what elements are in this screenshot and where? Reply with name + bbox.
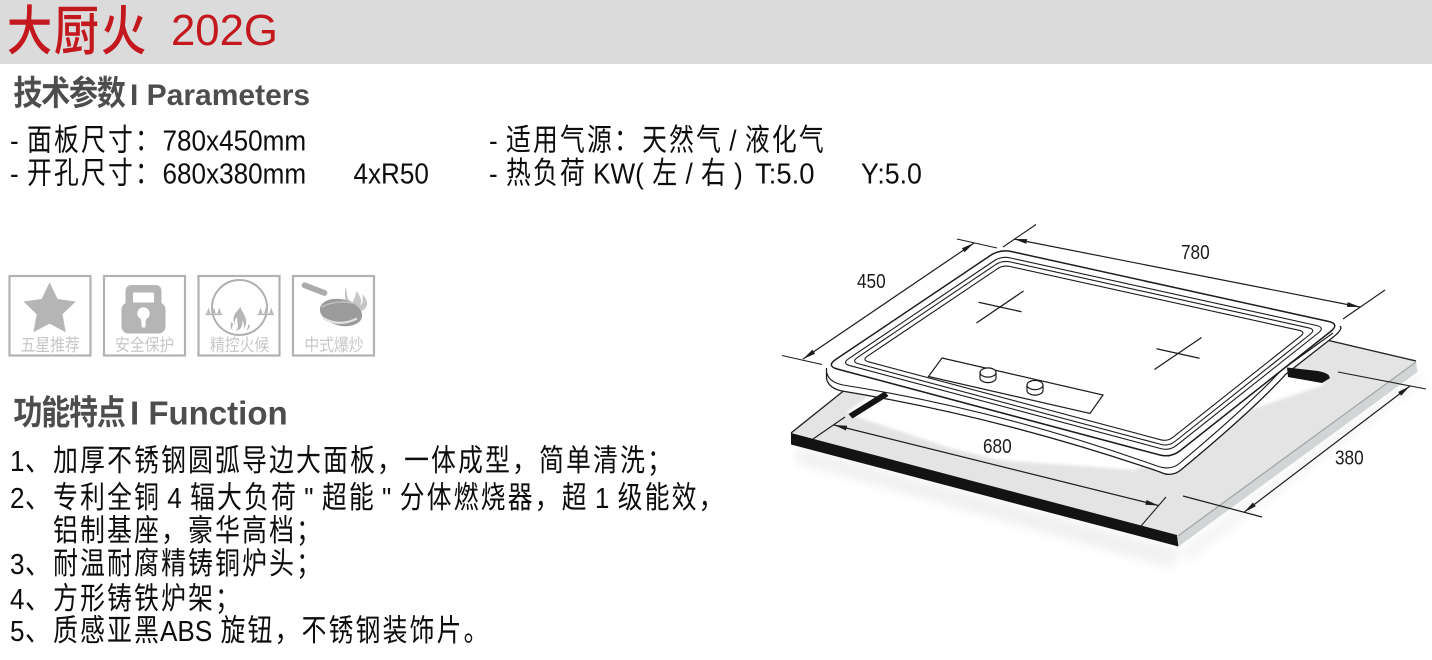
- svg-text:Y:5.0: Y:5.0: [861, 159, 922, 191]
- svg-text:): ): [727, 159, 743, 191]
- svg-text:680x380mm: 680x380mm: [163, 159, 307, 191]
- svg-text:-: -: [489, 126, 505, 158]
- svg-text:ABS: ABS: [160, 616, 220, 648]
- svg-text:3: 3: [10, 549, 25, 581]
- svg-text:/: /: [722, 126, 744, 158]
- svg-text:780: 780: [1181, 241, 1210, 264]
- svg-text:2: 2: [10, 483, 25, 515]
- svg-text:/: /: [678, 159, 700, 191]
- svg-text:-: -: [10, 159, 26, 191]
- svg-text:I Parameters: I Parameters: [130, 79, 310, 112]
- svg-text:202G: 202G: [171, 6, 278, 55]
- svg-text:I Function: I Function: [130, 395, 288, 432]
- svg-text:-: -: [489, 159, 505, 191]
- svg-text:-: -: [10, 126, 26, 158]
- svg-text:": ": [375, 483, 399, 515]
- svg-text:KW(: KW(: [586, 159, 651, 191]
- svg-text:4: 4: [160, 483, 189, 515]
- svg-text:5: 5: [10, 616, 25, 648]
- svg-text:1: 1: [588, 483, 617, 515]
- svg-text:1: 1: [10, 446, 25, 478]
- svg-text:T:5.0: T:5.0: [755, 159, 815, 191]
- svg-text:780x450mm: 780x450mm: [163, 126, 307, 158]
- svg-text:680: 680: [983, 435, 1012, 458]
- svg-text:4: 4: [10, 584, 25, 616]
- svg-text:380: 380: [1335, 447, 1364, 470]
- svg-text:450: 450: [857, 270, 886, 293]
- svg-text:4xR50: 4xR50: [354, 159, 429, 191]
- svg-text:": ": [297, 483, 321, 515]
